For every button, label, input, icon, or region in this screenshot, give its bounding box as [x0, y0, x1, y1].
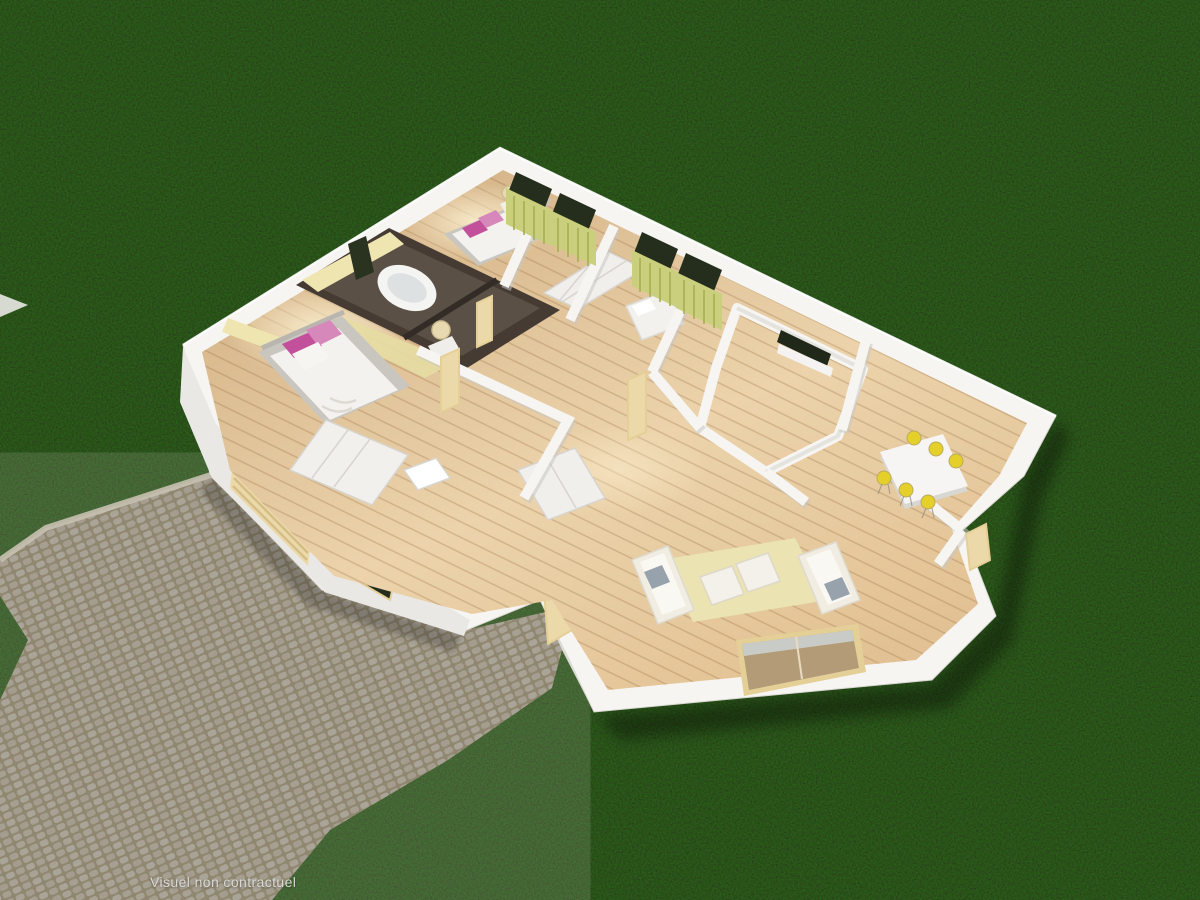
living-room — [632, 538, 860, 624]
disclaimer-text: Visuel non contractuel — [150, 874, 296, 890]
floor-plan-render — [0, 0, 1200, 900]
hall-door-2 — [477, 296, 492, 347]
render-stage: Visuel non contractuel — [0, 0, 1200, 900]
hall-door-1 — [441, 349, 459, 412]
foyer-door — [628, 372, 646, 440]
bed1-lamp — [432, 321, 450, 339]
